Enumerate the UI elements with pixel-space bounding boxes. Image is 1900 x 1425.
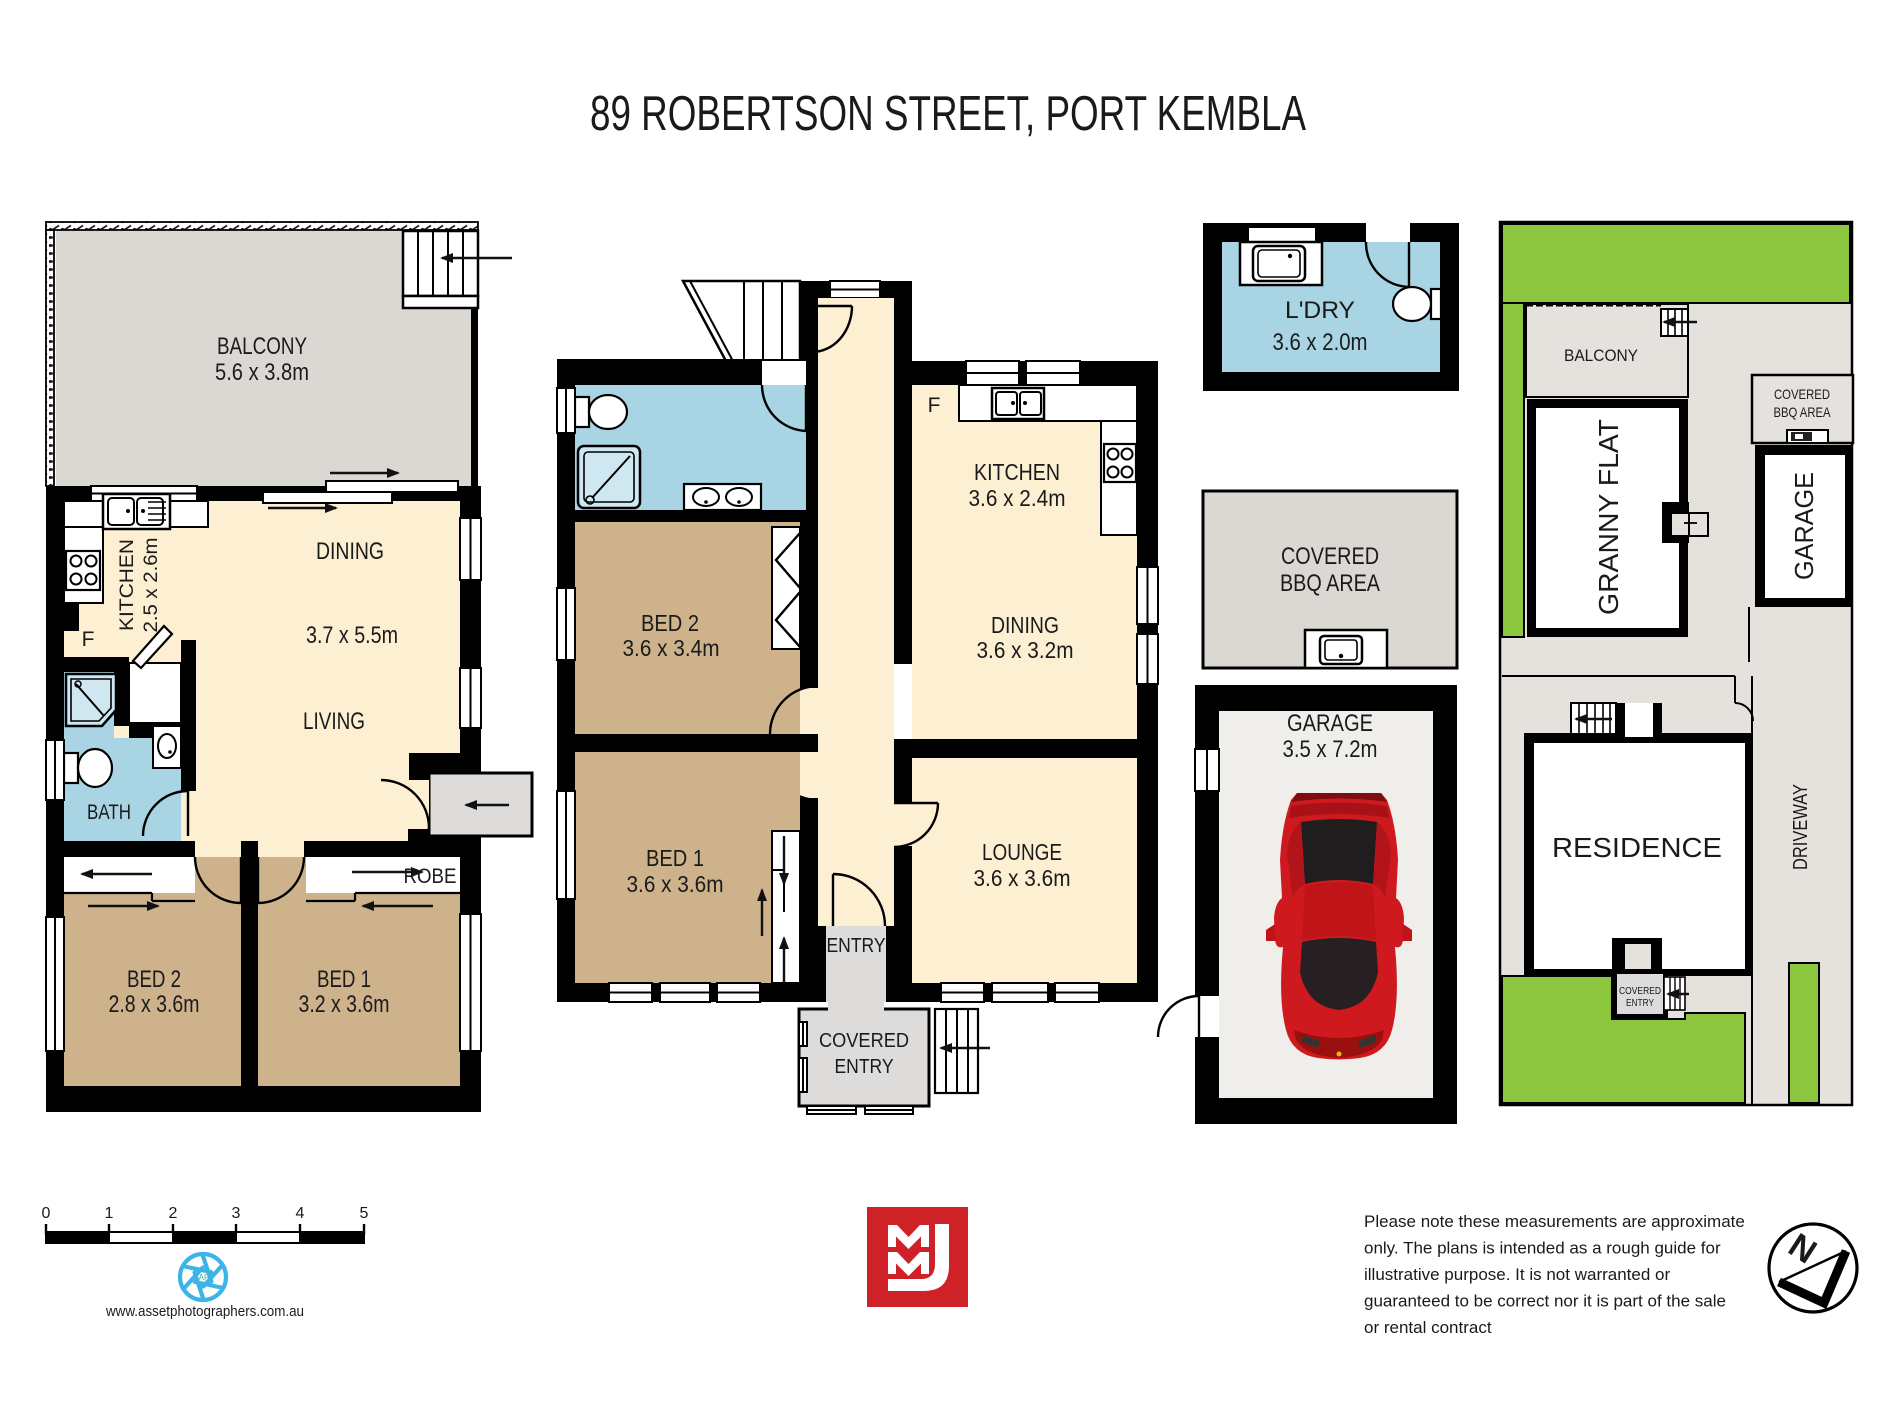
svg-text:2.8 x 3.6m: 2.8 x 3.6m <box>109 991 200 1018</box>
svg-text:guaranteed to be correct nor i: guaranteed to be correct nor it is part … <box>1364 1292 1726 1311</box>
svg-text:ENTRY: ENTRY <box>835 1056 894 1078</box>
svg-text:BED 2: BED 2 <box>641 610 699 636</box>
svg-text:3.7 x 5.5m: 3.7 x 5.5m <box>306 622 398 649</box>
svg-text:Please note these measurements: Please note these measurements are appro… <box>1364 1212 1745 1231</box>
svg-text:or rental contract: or rental contract <box>1364 1318 1492 1337</box>
svg-text:F: F <box>82 628 95 651</box>
svg-text:COVERED: COVERED <box>1281 543 1379 570</box>
svg-text:2.5 x 2.6m: 2.5 x 2.6m <box>141 538 162 633</box>
svg-text:F: F <box>928 394 941 417</box>
svg-text:LOUNGE: LOUNGE <box>982 839 1062 865</box>
svg-text:KITCHEN: KITCHEN <box>117 539 138 631</box>
svg-text:3.5 x 7.2m: 3.5 x 7.2m <box>1283 736 1378 763</box>
svg-text:4: 4 <box>296 1205 305 1222</box>
svg-text:BED 2: BED 2 <box>127 966 181 993</box>
svg-text:3.6 x 2.4m: 3.6 x 2.4m <box>969 485 1066 511</box>
svg-text:5.6 x 3.8m: 5.6 x 3.8m <box>215 359 309 386</box>
svg-text:BED 1: BED 1 <box>646 845 704 871</box>
svg-text:3.6 x 3.4m: 3.6 x 3.4m <box>623 635 720 661</box>
svg-text:ENTRY: ENTRY <box>827 935 886 957</box>
svg-text:COVERED: COVERED <box>1619 986 1661 997</box>
svg-text:LIVING: LIVING <box>303 708 365 735</box>
svg-text:DINING: DINING <box>991 612 1059 638</box>
svg-text:1: 1 <box>105 1205 114 1222</box>
svg-text:BALCONY: BALCONY <box>1564 346 1638 365</box>
svg-text:DINING: DINING <box>316 538 384 565</box>
svg-text:illustrative purpose. It is no: illustrative purpose. It is not warrante… <box>1364 1265 1670 1284</box>
svg-text:BED 1: BED 1 <box>317 966 371 993</box>
svg-text:only. The plans is intended as: only. The plans is intended as a rough g… <box>1364 1239 1721 1258</box>
svg-text:ROBE: ROBE <box>404 865 457 888</box>
svg-text:3: 3 <box>232 1205 241 1222</box>
svg-text:BALCONY: BALCONY <box>217 333 307 360</box>
svg-text:GARAGE: GARAGE <box>1287 710 1373 737</box>
svg-text:3.6 x 3.6m: 3.6 x 3.6m <box>627 871 724 897</box>
svg-text:COVERED: COVERED <box>1774 386 1830 402</box>
svg-text:2: 2 <box>169 1205 178 1222</box>
svg-text:DRIVEWAY: DRIVEWAY <box>1790 784 1812 870</box>
svg-text:GARAGE: GARAGE <box>1789 472 1819 580</box>
svg-text:0: 0 <box>42 1205 51 1222</box>
svg-text:www.assetphotographers.com.au: www.assetphotographers.com.au <box>105 1303 304 1320</box>
svg-text:COVERED: COVERED <box>819 1030 909 1052</box>
svg-text:3.6 x 2.0m: 3.6 x 2.0m <box>1273 329 1368 356</box>
svg-text:5: 5 <box>360 1205 369 1222</box>
svg-text:3.2 x 3.6m: 3.2 x 3.6m <box>299 991 390 1018</box>
svg-text:RESIDENCE: RESIDENCE <box>1552 832 1722 863</box>
svg-text:AP: AP <box>199 1273 210 1282</box>
svg-text:3.6 x 3.2m: 3.6 x 3.2m <box>977 637 1074 663</box>
svg-text:ENTRY: ENTRY <box>1626 998 1654 1009</box>
svg-text:L'DRY: L'DRY <box>1285 297 1355 324</box>
svg-text:KITCHEN: KITCHEN <box>974 459 1060 485</box>
svg-text:GRANNY FLAT: GRANNY FLAT <box>1593 419 1624 615</box>
svg-text:89 ROBERTSON STREET, PORT KEMB: 89 ROBERTSON STREET, PORT KEMBLA <box>590 87 1306 141</box>
svg-text:3.6 x 3.6m: 3.6 x 3.6m <box>974 865 1071 891</box>
svg-text:BATH: BATH <box>87 801 131 824</box>
svg-text:BBQ AREA: BBQ AREA <box>1280 570 1380 597</box>
svg-text:BBQ AREA: BBQ AREA <box>1774 404 1832 420</box>
